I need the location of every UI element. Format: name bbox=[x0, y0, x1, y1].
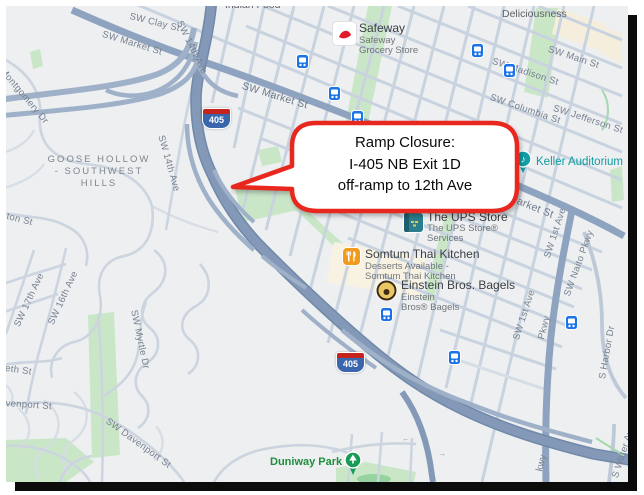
callout-text: Ramp Closure: I-405 NB Exit 1D off-ramp … bbox=[296, 132, 514, 197]
screenshot: SW Clay St SW Market St SW 14th Ave SW 1… bbox=[0, 0, 644, 495]
map-canvas[interactable]: SW Clay St SW Market St SW 14th Ave SW 1… bbox=[6, 6, 628, 482]
callout-bubble bbox=[6, 6, 628, 482]
